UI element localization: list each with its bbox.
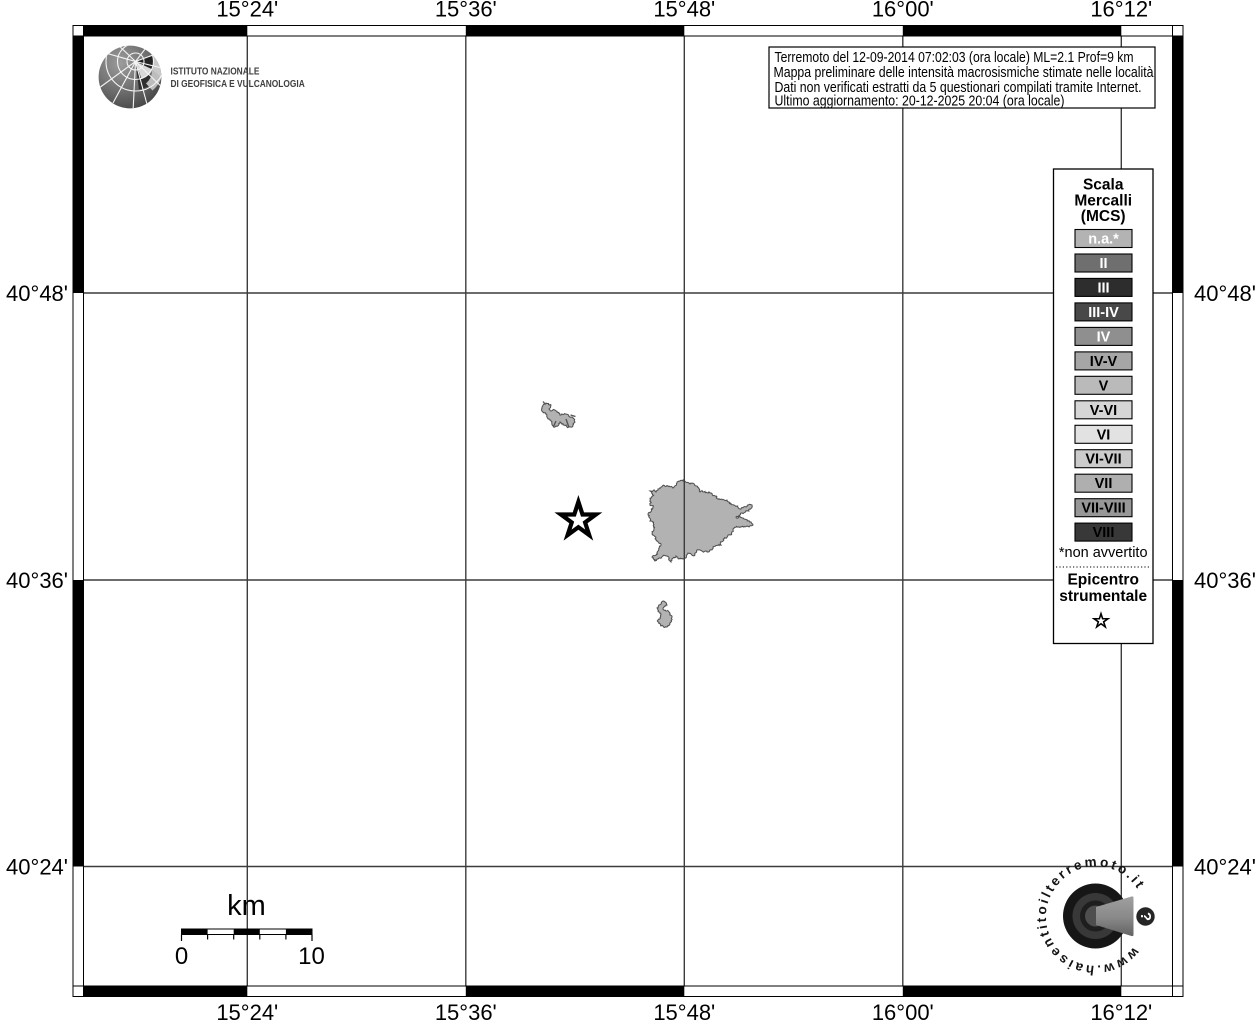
- svg-text:40°48': 40°48': [1194, 281, 1256, 306]
- svg-text:Ultimo aggiornamento: 20-12-20: Ultimo aggiornamento: 20-12-2025 20:04 (…: [775, 94, 1065, 110]
- svg-text:n.a.*: n.a.*: [1088, 232, 1119, 248]
- svg-text:16°00': 16°00': [872, 0, 934, 22]
- svg-text:10: 10: [298, 943, 325, 970]
- svg-text:II: II: [1099, 256, 1107, 272]
- svg-text:III-IV: III-IV: [1088, 305, 1119, 321]
- svg-text:*non avvertito: *non avvertito: [1059, 545, 1148, 561]
- svg-text:15°24': 15°24': [216, 0, 278, 22]
- svg-text:15°36': 15°36': [435, 1000, 497, 1024]
- svg-text:III: III: [1097, 280, 1109, 296]
- svg-text:15°48': 15°48': [653, 1000, 715, 1024]
- svg-text:IV-V: IV-V: [1090, 354, 1118, 370]
- svg-text:40°24': 40°24': [6, 855, 68, 880]
- svg-text:15°36': 15°36': [435, 0, 497, 22]
- svg-text:40°24': 40°24': [1194, 855, 1256, 880]
- svg-text:Terremoto del 12-09-2014 07:02: Terremoto del 12-09-2014 07:02:03 (ora l…: [775, 50, 1134, 66]
- svg-text:(MCS): (MCS): [1081, 208, 1126, 225]
- svg-text:VI-VII: VI-VII: [1085, 452, 1121, 468]
- svg-text:Mappa preliminare delle intens: Mappa preliminare delle intensità macros…: [774, 65, 1154, 81]
- svg-text:16°00': 16°00': [872, 1000, 934, 1024]
- svg-text:16°12': 16°12': [1090, 1000, 1152, 1024]
- svg-text:40°36': 40°36': [1194, 568, 1256, 593]
- svg-text:15°24': 15°24': [216, 1000, 278, 1024]
- svg-text:?: ?: [1137, 912, 1154, 921]
- svg-text:km: km: [227, 890, 266, 922]
- svg-text:16°12': 16°12': [1090, 0, 1152, 22]
- svg-text:strumentale: strumentale: [1059, 588, 1147, 605]
- svg-text:VI: VI: [1097, 427, 1111, 443]
- svg-text:0: 0: [175, 943, 188, 970]
- svg-text:V-VI: V-VI: [1090, 403, 1117, 419]
- svg-text:IV: IV: [1097, 329, 1111, 345]
- svg-text:V: V: [1099, 378, 1109, 394]
- svg-text:VIII: VIII: [1093, 525, 1115, 541]
- svg-text:Epicentro: Epicentro: [1067, 572, 1138, 589]
- svg-text:VII-VIII: VII-VIII: [1081, 501, 1125, 517]
- svg-text:Mercalli: Mercalli: [1074, 193, 1132, 210]
- svg-text:40°48': 40°48': [6, 281, 68, 306]
- svg-text:40°36': 40°36': [6, 568, 68, 593]
- svg-text:15°48': 15°48': [653, 0, 715, 22]
- svg-text:ISTITUTO NAZIONALE: ISTITUTO NAZIONALE: [171, 66, 260, 77]
- svg-text:Scala: Scala: [1083, 177, 1124, 194]
- svg-text:VII: VII: [1095, 476, 1113, 492]
- svg-text:DI GEOFISICA E VULCANOLOGIA: DI GEOFISICA E VULCANOLOGIA: [171, 78, 305, 89]
